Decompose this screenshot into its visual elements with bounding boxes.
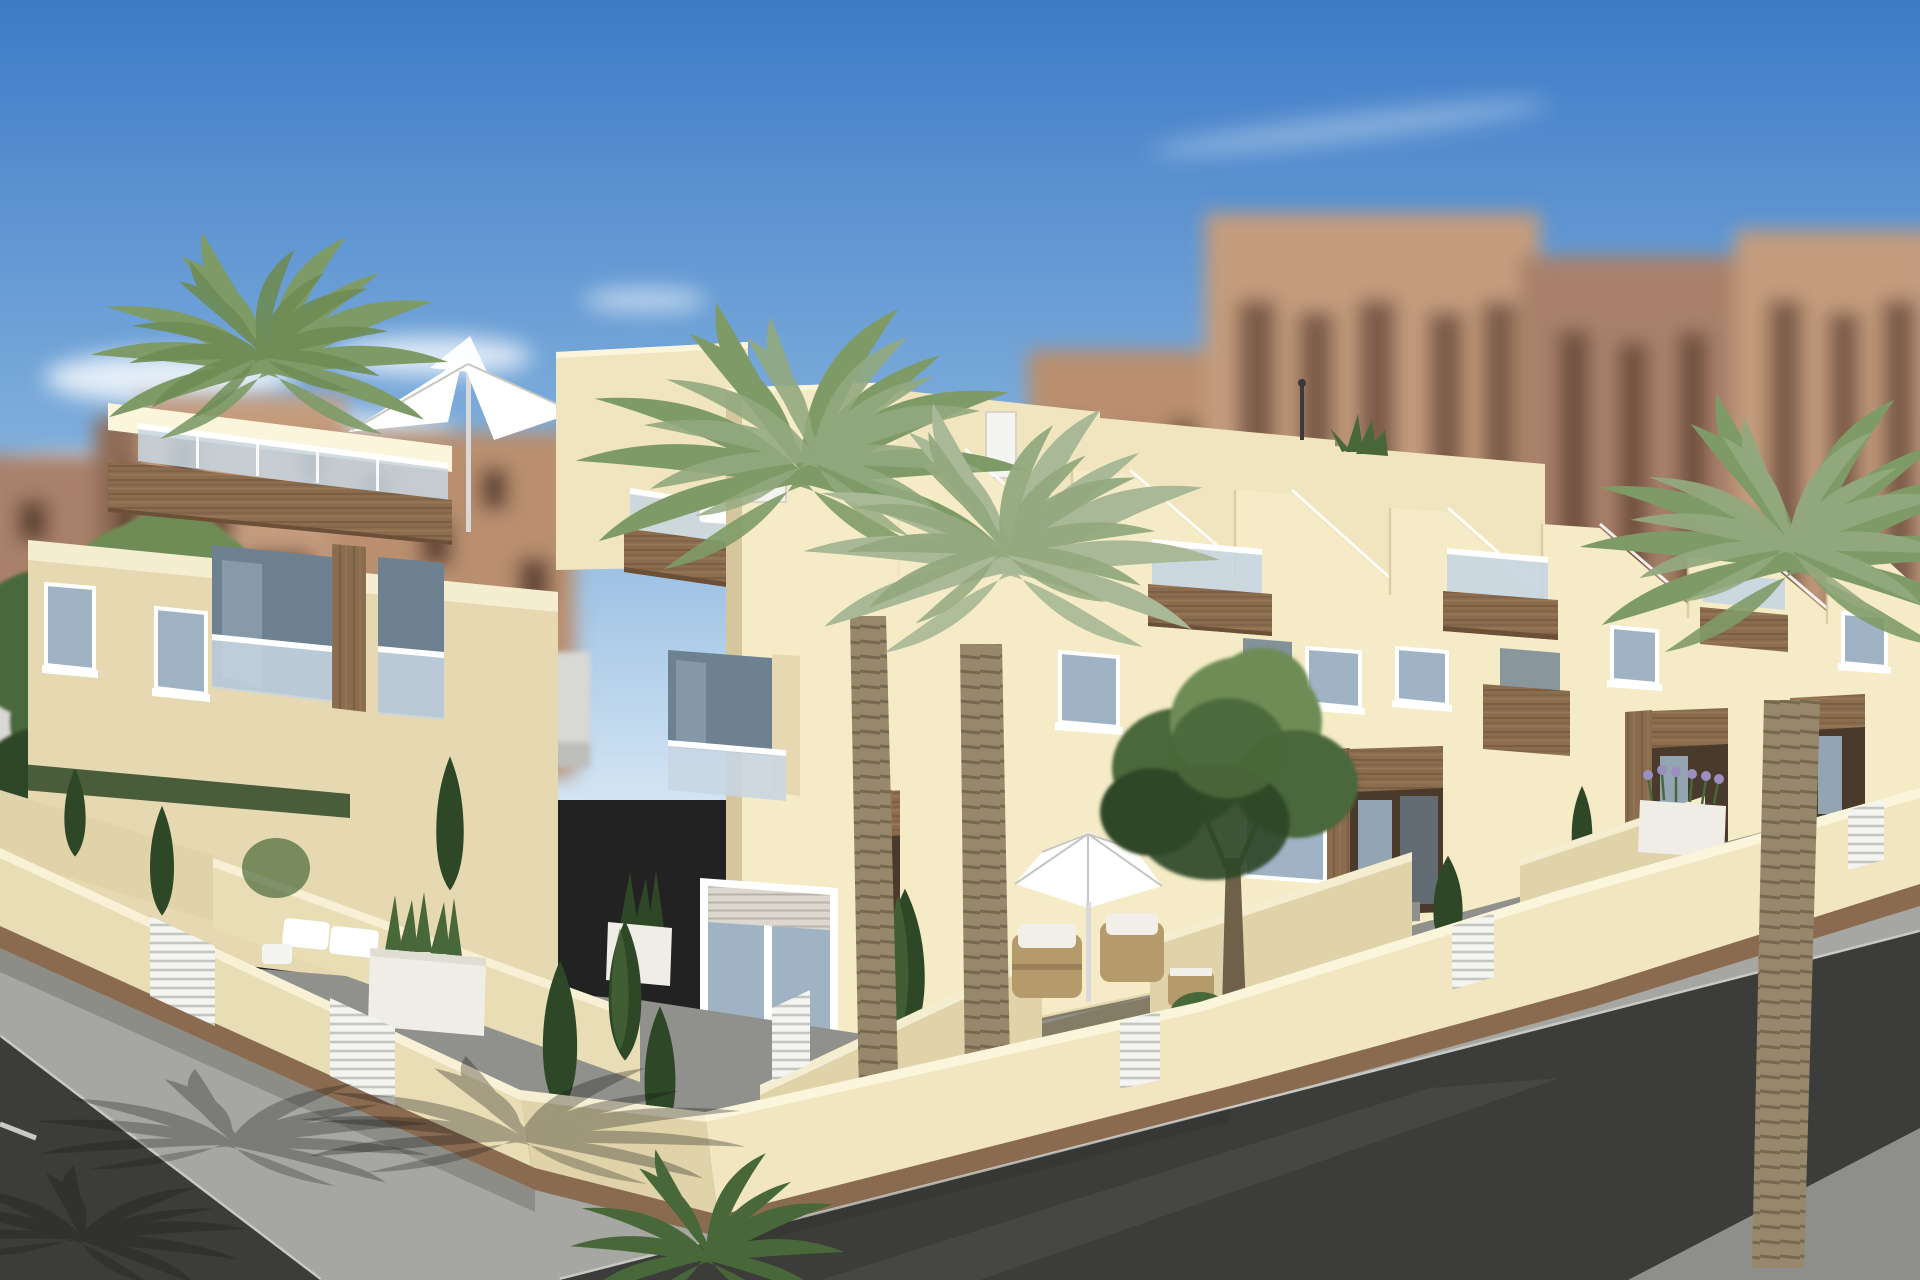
render-canvas: New-build corner townhouses — 3D archite… [0,0,1920,1280]
corner-balcony [668,650,800,801]
left-balcony-2 [378,557,444,720]
left-wood-pilaster [332,544,366,712]
left-window-2 [152,608,210,702]
balcony-b2 [1443,548,1558,640]
left-balcony-1 [212,545,332,702]
left-window-1 [42,584,98,678]
architectural-render: New-build corner townhouses — 3D archite… [0,0,1920,1280]
